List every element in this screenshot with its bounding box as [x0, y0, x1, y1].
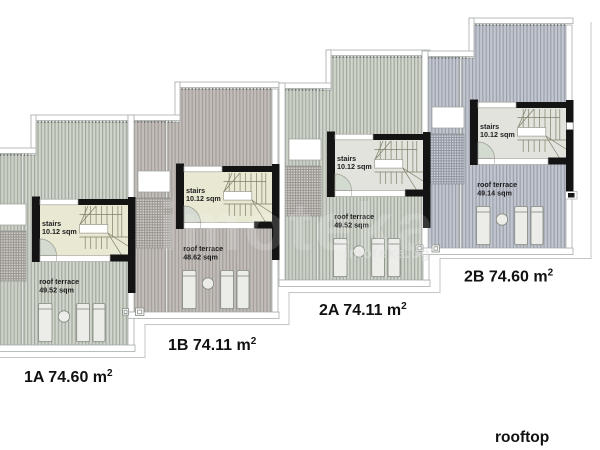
svg-text:49.52 sqm: 49.52 sqm [39, 286, 74, 295]
svg-text:1B 74.11 m2: 1B 74.11 m2 [168, 336, 257, 354]
svg-text:2A 74.11 m2: 2A 74.11 m2 [319, 301, 407, 319]
svg-text:2B 74.60 m2: 2B 74.60 m2 [464, 268, 554, 286]
svg-text:49.14 sqm: 49.14 sqm [477, 189, 512, 198]
svg-text:imoteka.bg: imoteka.bg [344, 246, 431, 262]
svg-text:10.12 sqm: 10.12 sqm [337, 162, 372, 171]
svg-text:1A 74.60 m2: 1A 74.60 m2 [24, 368, 113, 386]
svg-text:rooftop: rooftop [495, 429, 549, 446]
svg-text:10.12 sqm: 10.12 sqm [480, 130, 515, 139]
svg-text:10.12 sqm: 10.12 sqm [42, 227, 77, 236]
